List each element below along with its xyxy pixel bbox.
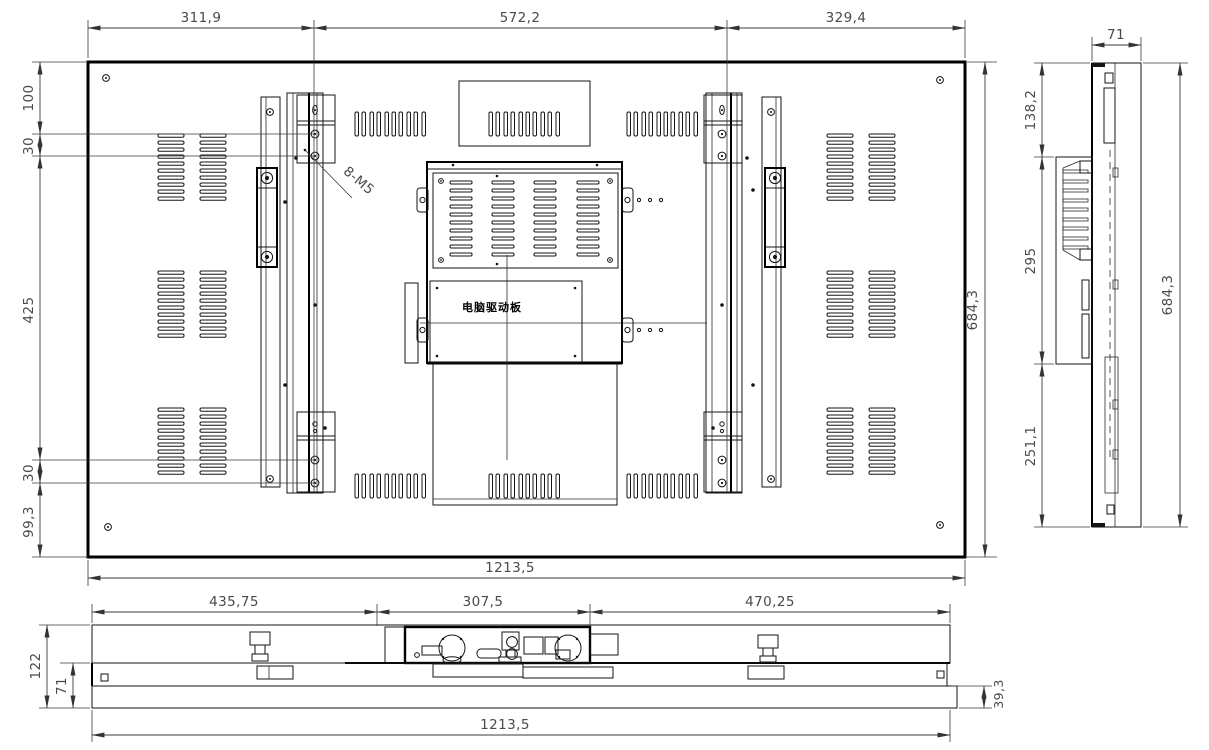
dim-bottom-bottom: 1213,5 — [480, 717, 530, 733]
right-handle — [765, 168, 785, 267]
thread-callout: 8-M5 — [340, 163, 377, 198]
rear-dimensions: 311,9 572,2 329,4 100 30 425 30 99,3 684… — [21, 10, 997, 586]
side-dimensions: 71 138,2 295 251,1 684,3 — [1023, 27, 1188, 527]
cad-drawing-page: 电脑驱动板 311,9 572,2 329,4 100 30 425 30 99… — [0, 0, 1209, 750]
dim-bottom-left-1: 122 — [28, 653, 44, 680]
dim-bottom-top-3: 470,25 — [745, 594, 795, 610]
dim-bottom-top-1: 435,75 — [209, 594, 259, 610]
top-center-plate — [459, 81, 590, 146]
dim-side-right: 684,3 — [1160, 275, 1176, 316]
dim-rear-top-3: 329,4 — [826, 10, 867, 26]
side-view: 71 138,2 295 251,1 684,3 — [1023, 27, 1188, 527]
left-handle — [257, 168, 277, 267]
dsub-connector — [477, 649, 501, 658]
left-mounting-rail — [257, 93, 335, 493]
dim-rear-right: 684,3 — [965, 290, 981, 331]
dim-rear-left-1: 100 — [21, 85, 37, 112]
bottom-dimensions: 435,75 307,5 470,25 122 71 39,3 1213,5 — [28, 594, 1006, 742]
bottom-view: 435,75 307,5 470,25 122 71 39,3 1213,5 — [28, 594, 1006, 742]
dim-bottom-left-2: 71 — [54, 677, 70, 695]
dim-bottom-top-2: 307,5 — [463, 594, 504, 610]
board-cover-plate — [430, 281, 582, 363]
vent-slots-top-row — [355, 112, 698, 136]
dim-side-top: 71 — [1107, 27, 1125, 43]
dim-rear-bottom: 1213,5 — [485, 560, 535, 576]
dim-rear-left-2: 30 — [21, 137, 37, 155]
side-electronics-profile — [1056, 157, 1092, 364]
technical-drawing: 电脑驱动板 311,9 572,2 329,4 100 30 425 30 99… — [0, 0, 1209, 750]
dim-side-left-1: 138,2 — [1023, 90, 1039, 131]
dim-rear-left-5: 99,3 — [21, 506, 37, 538]
rear-view: 电脑驱动板 311,9 572,2 329,4 100 30 425 30 99… — [21, 10, 997, 586]
dim-rear-top-2: 572,2 — [500, 10, 541, 26]
dim-rear-left-4: 30 — [21, 464, 37, 482]
dim-bottom-right: 39,3 — [991, 679, 1006, 708]
vent-slots-bottom-row — [355, 474, 698, 498]
dim-rear-left-3: 425 — [21, 297, 37, 324]
right-mount-stud — [748, 635, 784, 679]
vent-slats-right — [827, 134, 895, 474]
vent-slats-left — [158, 134, 226, 474]
dim-side-left-2: 295 — [1023, 248, 1039, 275]
driver-board-unit: 电脑驱动板 — [405, 162, 707, 505]
board-label: 电脑驱动板 — [462, 300, 522, 314]
right-mounting-rail — [704, 93, 785, 493]
dim-side-left-3: 251,1 — [1023, 426, 1039, 467]
left-mount-stud — [250, 632, 293, 679]
corner-screws — [103, 75, 944, 531]
dim-rear-top-1: 311,9 — [181, 10, 222, 26]
